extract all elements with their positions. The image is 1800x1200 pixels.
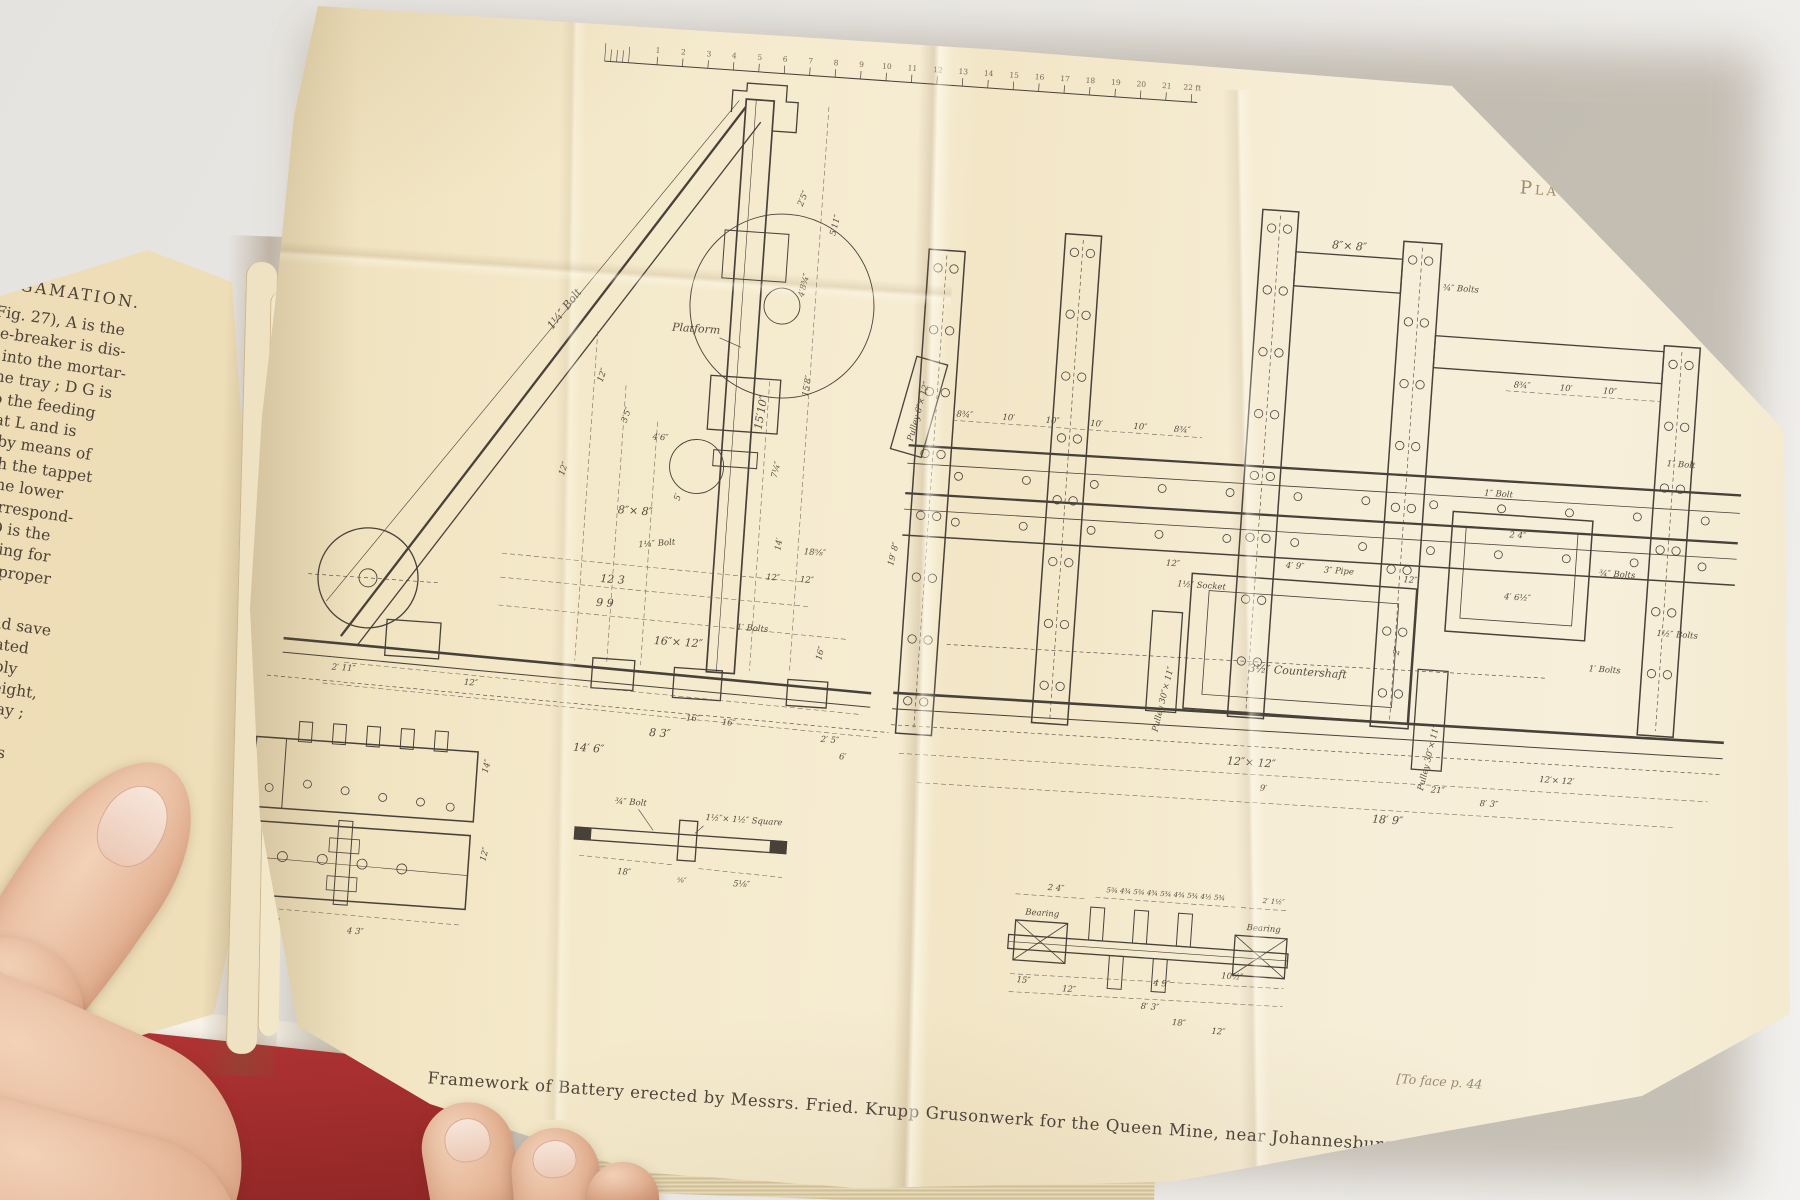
dim-lines	[575, 331, 664, 665]
bolt-hole	[1497, 505, 1506, 514]
band-line	[904, 501, 1737, 567]
bolt-hole	[1494, 550, 1503, 559]
label-spacing: 10″	[1603, 387, 1618, 398]
right-bay-inner	[1460, 526, 1578, 626]
battery-post	[706, 99, 774, 674]
label-cam-spacing: 5¾ 4¾ 5¾ 4¾ 5¾ 4¾ 5¾ 4½ 5¾	[1106, 886, 1225, 902]
bolt-hole	[277, 851, 288, 862]
ruler-tick	[861, 71, 862, 79]
ruler-tick-label: 10	[882, 61, 892, 71]
ruler-tick	[1166, 92, 1167, 100]
inclined-brace	[341, 81, 746, 661]
leader	[637, 809, 654, 830]
bolt-hole	[929, 325, 938, 334]
label-dim: 18′ 9″	[1372, 813, 1405, 828]
ruler-tick	[759, 64, 760, 72]
label-dim: 8′ 3″	[1479, 799, 1499, 810]
label-dim: 12″	[464, 678, 479, 689]
bolt-hole	[1672, 547, 1681, 556]
bolt-hole	[951, 518, 960, 527]
mortar-plan-lower	[242, 820, 471, 909]
ruler-tick-label: 11	[907, 63, 917, 73]
ruler-tick	[835, 69, 836, 77]
bolt-plate	[326, 876, 357, 892]
label-dim: 4 3″	[346, 926, 365, 937]
label-bolts: ¾″ Bolts	[1599, 568, 1636, 582]
label-dim: 12 3	[600, 572, 625, 587]
ground-line	[266, 675, 889, 732]
label-dim: 4′ 9″	[1284, 561, 1305, 572]
bolt-hole	[1263, 285, 1272, 294]
label-dim: 14′ 6″	[573, 741, 606, 756]
label-dim: 12″	[1166, 558, 1181, 569]
bearing-cross	[1013, 920, 1068, 964]
label-bearing: Bearing	[1245, 923, 1281, 935]
label-dim: 7¼″	[769, 459, 784, 479]
bolt-hole	[1633, 513, 1642, 522]
label-dim: 9 9	[596, 596, 614, 610]
pulley-hub	[358, 568, 377, 587]
label-sill-12x12: 12′× 12′	[1539, 775, 1575, 787]
label-dim: 16″	[814, 644, 827, 661]
ruler-tick-label: 19	[1111, 78, 1121, 88]
base-sill-top	[283, 638, 873, 693]
label-dim: 12″	[800, 575, 815, 586]
bolt-hole	[1279, 287, 1288, 296]
bolt-hole	[1087, 526, 1096, 535]
pedestal-block	[786, 679, 828, 708]
bolt-hole	[919, 697, 928, 706]
bolt-hole	[1565, 509, 1574, 518]
label-dim: 18″	[617, 867, 632, 878]
label-spacing: 10′	[1559, 384, 1572, 395]
base-dim-lines	[321, 661, 882, 738]
bolt-hole	[1061, 372, 1070, 381]
label-dim: 21″	[1429, 785, 1445, 796]
ruler-tick-label: 2	[681, 47, 687, 56]
bolt-hole	[1267, 224, 1276, 233]
ruler-tick	[988, 80, 989, 88]
folio-note: [To face p. 44	[1396, 1071, 1483, 1092]
label-dim: 12″	[766, 573, 781, 584]
ruler-tick	[708, 60, 709, 68]
cam	[1088, 907, 1104, 941]
label-dim: 4′6″	[651, 432, 669, 443]
crank-hub	[763, 287, 801, 325]
bolt-hole	[1656, 545, 1665, 554]
bolt-hole	[1420, 318, 1429, 327]
bolt-hole	[396, 864, 407, 875]
bolt-hole	[1424, 257, 1433, 266]
ruler-tick-label: 4	[732, 51, 738, 60]
detail-dim-lines	[579, 855, 783, 877]
ruler-tick-label: 8	[833, 58, 839, 67]
bolt-hole	[1155, 530, 1164, 539]
label-dim: ⅝″	[677, 876, 687, 885]
label-dim: 3′5″	[620, 405, 635, 424]
bolt-hole	[1387, 565, 1396, 574]
label-socket: 1½″ Socket	[1177, 578, 1227, 592]
label-spacing: 10″	[1045, 416, 1060, 427]
bolt-hole	[1404, 317, 1413, 326]
bolt-hole	[265, 783, 274, 792]
label-spacing: 10′	[1002, 413, 1015, 424]
ruler-baseline	[605, 61, 1198, 102]
label-dim: 18″	[1172, 1018, 1187, 1029]
label-bolts: 1′ Bolts	[736, 623, 769, 635]
label-dim: 2′ 5″	[819, 735, 840, 746]
label-dim: 16″× 12″	[653, 634, 704, 650]
ruler-tick	[911, 75, 912, 83]
bolt-hole	[1394, 690, 1403, 699]
bolt-hole	[1044, 619, 1053, 628]
bolt-hole	[1283, 225, 1292, 234]
bolt-hole	[1408, 255, 1417, 264]
label-dim: 2 4″	[1046, 883, 1065, 894]
ruler-tick-label: 14	[984, 69, 994, 79]
label-dim: 2 4″	[1508, 530, 1527, 541]
label-dim: 12″	[1211, 1027, 1226, 1038]
sill-dim-lines	[897, 745, 1708, 837]
fingertip-nail	[531, 1138, 578, 1180]
ruler-tick-label: 9	[859, 60, 865, 69]
label-dim: 12″	[1062, 984, 1077, 995]
label-dim: 12″	[478, 846, 491, 863]
bolt-hole	[908, 634, 917, 643]
bolt-hole	[1382, 627, 1391, 636]
ruler-tick	[1039, 83, 1040, 91]
ruler-tick	[1191, 94, 1192, 102]
label-spacing: 8¾″	[1174, 424, 1192, 436]
sill-top	[893, 685, 1724, 751]
ruler-tick-label: 12	[933, 65, 943, 75]
label-platform: Platform	[671, 320, 721, 336]
bolt-hole	[446, 803, 455, 812]
label-bolts: ¾″ Bolts	[1442, 282, 1479, 296]
bolt-hole	[1378, 688, 1387, 697]
label-bolt: ¾″ Bolt	[615, 796, 648, 809]
label-dim: 4 9″	[1152, 979, 1171, 990]
bolt-hole	[1226, 488, 1235, 497]
bolt-hole	[1395, 441, 1404, 450]
bolt-hole	[1019, 522, 1028, 531]
label-pipe: 3″ Pipe	[1323, 566, 1354, 578]
bolt-hole	[1040, 681, 1049, 690]
leader	[695, 825, 704, 834]
bolt-hole	[1407, 504, 1416, 513]
right-top-beam	[1433, 336, 1664, 384]
bolt-hole	[1258, 347, 1267, 356]
label-spacing: 8¾″	[956, 409, 974, 421]
label-dim: 4′ 6½″	[1503, 591, 1532, 604]
bolt-hole	[934, 263, 943, 272]
bolt-hole	[949, 265, 958, 274]
bolt-hole	[1066, 310, 1075, 319]
bolt-hole	[924, 636, 933, 645]
ruler-tick	[733, 62, 734, 70]
bolt-hole	[1680, 423, 1689, 432]
bolt-hole	[1060, 620, 1069, 629]
square-block	[677, 820, 698, 861]
bolt-detail: ¾″ Bolt 1½″× 1½″ Square 18″ 5⅛″ ⅝″	[572, 793, 789, 893]
bolt-hole	[1254, 409, 1263, 418]
bolt-hole	[1398, 628, 1407, 637]
book-photo: ND AMALGAMATION. — In this machine (Fig.…	[0, 0, 1800, 1200]
bolt-hole	[1630, 559, 1639, 568]
guide-block	[722, 230, 789, 282]
cam	[1107, 956, 1123, 990]
label-dim: 2′ 1½″	[1261, 897, 1285, 907]
cam	[1132, 910, 1148, 944]
label-beam-8x8: 8″× 8″	[1332, 238, 1369, 253]
label-bolt-lower: 1¼″ Bolt	[638, 537, 676, 551]
label-dim: 8 3″	[649, 726, 672, 741]
bolt-hole	[1416, 380, 1425, 389]
bolt-hole	[945, 326, 954, 335]
vertical-dim-lines	[749, 104, 829, 673]
bolt-hole	[1701, 517, 1710, 526]
bolt-hole	[1698, 563, 1707, 572]
bolt-hole	[1411, 442, 1420, 451]
bolt-hole	[1077, 373, 1086, 382]
bolt-hole	[1266, 472, 1275, 481]
ruler-tick	[1013, 82, 1014, 90]
mortar-plan-view: 14″ 12″ 12′ 4 3″	[239, 718, 499, 946]
label-bolts: 1½″ Bolts	[1656, 628, 1699, 642]
label-spacing: 10′	[1090, 419, 1103, 430]
bolt-hole	[1261, 534, 1270, 543]
label-bolt: 1″ Bolt	[1484, 489, 1514, 501]
post-head-steps	[730, 82, 799, 132]
front-elevation: 8″× 8″ ¾″ Bolts 8¾″ 10′ 10″ 10′ 10″ 8¾″ …	[867, 185, 1759, 850]
label-dim: 2′5″	[796, 189, 812, 209]
bolt-hole	[303, 780, 312, 789]
label-dim: 2′ 11″	[330, 662, 356, 674]
label-dim: 14″	[481, 757, 494, 774]
label-spacing: 10″	[1133, 422, 1148, 433]
label-countershaft: 3½″ Countershaft	[1248, 662, 1348, 682]
bolt-hole	[916, 511, 925, 520]
ruler-tick-label: 22 ft	[1183, 83, 1201, 93]
label-dim: 2′	[1391, 647, 1403, 658]
label-bolt: 1″ Bolt	[1666, 459, 1696, 471]
ruler-tick	[1115, 89, 1116, 97]
top-beam-8x8	[1294, 252, 1403, 293]
ruler-tick	[886, 73, 887, 81]
bolt-hole	[1073, 435, 1082, 444]
band-beam	[902, 527, 1735, 593]
label-pulley-30x11: Pulley 30″× 11″	[1150, 665, 1176, 734]
label-bearing: Bearing	[1024, 907, 1060, 919]
ruler-tick-label: 6	[783, 55, 789, 64]
ruler-tick-label: 13	[958, 67, 968, 77]
label-dim: 6′	[839, 752, 847, 762]
bolt-hole	[1562, 555, 1571, 564]
bolt-hole	[937, 450, 946, 459]
bolt-hole	[1223, 534, 1232, 543]
bolt-hole	[1057, 433, 1066, 442]
label-dim: 15′8″	[801, 374, 815, 398]
bolt-hole	[1241, 595, 1250, 604]
bolt-hole	[1362, 496, 1371, 505]
bolt-hole	[1669, 360, 1678, 369]
bolt-hole	[941, 388, 950, 397]
sill-bottom	[892, 701, 1723, 767]
label-dim: 16″	[686, 713, 701, 724]
bolt-hole	[1400, 379, 1409, 388]
ruler-tick	[682, 59, 683, 67]
label-dim: 12″	[596, 366, 610, 383]
ruler-tick	[962, 78, 963, 86]
bolt-hole	[341, 787, 350, 796]
ruler-tick-label: 3	[706, 49, 712, 58]
side-elevation: 1¼″ Bolt Platform 12″ 3′5″ 12″ 2′5″ 5′11…	[263, 53, 933, 776]
bar-end	[770, 841, 787, 854]
bolt-hole	[903, 696, 912, 705]
bolt-hole	[1257, 596, 1266, 605]
center-bolt	[333, 820, 353, 905]
bolt-hole	[1022, 476, 1031, 485]
bolt-hole	[1429, 500, 1438, 509]
bolt-hole	[1070, 248, 1079, 257]
bolt-hole	[1426, 546, 1435, 555]
label-dim: 18⅝″	[803, 547, 827, 559]
bar-end	[574, 827, 591, 840]
base-sill-bottom	[282, 652, 872, 707]
bolt-hole	[1358, 542, 1367, 551]
label-dim: 4′8¾″	[796, 271, 813, 299]
bolt-hole	[1651, 607, 1660, 616]
label-dim: 12″	[557, 460, 571, 477]
bolt-hole	[1048, 557, 1057, 566]
bolt-hole	[378, 793, 387, 802]
label-dim: 15′10″	[752, 393, 771, 430]
spacing-dim-line-right	[1506, 391, 1661, 402]
label-dim: 5′11″	[828, 213, 843, 237]
thumb-nail	[85, 773, 182, 877]
bolt-hole	[1664, 422, 1673, 431]
ruler-tick	[1064, 85, 1065, 93]
ruler-tick-label: 16	[1035, 72, 1045, 82]
bolt-hole	[1056, 682, 1065, 691]
bolt-hole	[1667, 608, 1676, 617]
bolt-hole	[1294, 492, 1303, 501]
label-beam-8x8: 8″× 8″	[617, 503, 654, 518]
label-dim: 8′ 3″	[1140, 1002, 1160, 1013]
bolt-hole	[1647, 669, 1656, 678]
ruler-tick	[1089, 87, 1090, 95]
band-beam	[909, 437, 1742, 503]
pedestal-block	[591, 658, 635, 691]
bolt-hole	[1082, 311, 1091, 320]
tie-rod	[326, 74, 739, 627]
bolt-hole	[1250, 471, 1259, 480]
bolt-hole	[1290, 538, 1299, 547]
label-sill-12x12: 12″× 12″	[1226, 754, 1277, 770]
label-dim: 9′	[1259, 784, 1267, 794]
label-dim: 19′ 8″	[886, 540, 902, 567]
ruler-tick	[657, 57, 658, 65]
ruler-tick	[937, 76, 938, 84]
bolt-hole	[954, 472, 963, 481]
level-dim-lines	[498, 553, 851, 639]
ruler-tick	[810, 67, 811, 75]
countershaft-detail: Bearing Bearing 2 4″ 5¾ 4¾ 5¾ 4¾ 5¾ 4¾ 5…	[1003, 880, 1292, 1042]
label-dim: 16″	[721, 718, 736, 729]
bolt-hole	[357, 859, 368, 870]
cam-circle	[668, 438, 726, 496]
ruler-tick-label: 21	[1162, 81, 1172, 91]
label-square: 1½″× 1½″ Square	[705, 812, 783, 828]
bolt-hole	[1685, 361, 1694, 370]
label-dim: 15″	[1016, 975, 1031, 986]
band-beam	[905, 485, 1738, 551]
ruler-tick-label: 18	[1085, 76, 1095, 86]
ruler-tick-label: 20	[1136, 79, 1146, 89]
ruler-comb	[605, 43, 630, 63]
label-bolts: 1′ Bolts	[1588, 664, 1621, 676]
label-spacing: 8¾″	[1513, 379, 1531, 391]
bolt-hole	[1064, 558, 1073, 567]
ruler-tick-label: 5	[757, 53, 763, 62]
bolt-hole	[1663, 670, 1672, 679]
label-dim: 12″	[1403, 575, 1418, 586]
bolt-hole	[1246, 533, 1255, 542]
bolt-hole	[912, 573, 921, 582]
bolt-hole	[1391, 503, 1400, 512]
bar	[574, 827, 786, 854]
bolt-plate	[329, 838, 360, 854]
bolt-hole	[928, 574, 937, 583]
label-dim: 5′	[673, 492, 684, 502]
bolt-hole	[1403, 566, 1412, 575]
ruler-tick-label: 17	[1060, 74, 1070, 84]
sill-ground	[891, 717, 1722, 783]
label-dim: 14′	[773, 537, 785, 551]
ruler-tick	[784, 66, 785, 74]
label-pulley-30x11: Pulley 30″× 11″	[1416, 723, 1442, 792]
bolt-hole	[1090, 480, 1099, 489]
cam	[1176, 913, 1192, 947]
bolt-hole	[932, 512, 941, 521]
ruler-tick-label: 15	[1009, 70, 1019, 80]
label-dim: 10½″	[1221, 970, 1245, 983]
ruler-tick	[1140, 91, 1141, 99]
ruler-tick-label: 7	[808, 56, 814, 65]
fingertip-nail	[441, 1114, 494, 1165]
bolt-hole	[1274, 348, 1283, 357]
bolt-hole	[416, 798, 425, 807]
bolt-hole	[1086, 249, 1095, 258]
bolt-hole	[1158, 484, 1167, 493]
ruler-tick-label: 1	[655, 46, 660, 55]
bolt-hole	[317, 854, 328, 865]
label-dim: 5⅛″	[733, 879, 751, 890]
bolt-hole	[1270, 410, 1279, 419]
